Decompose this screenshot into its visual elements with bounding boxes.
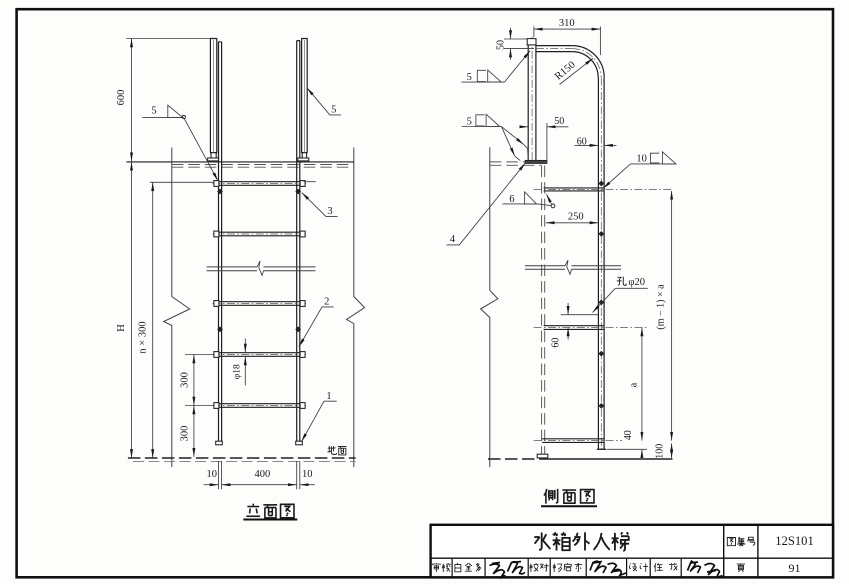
svg-text:2: 2: [324, 297, 329, 308]
svg-text:50: 50: [554, 116, 564, 127]
svg-text:300: 300: [180, 372, 191, 388]
svg-text:400: 400: [255, 469, 271, 480]
svg-text:50: 50: [496, 40, 507, 50]
svg-text:1: 1: [326, 391, 331, 402]
svg-text:4: 4: [450, 234, 456, 245]
svg-text:60: 60: [550, 338, 561, 348]
svg-text:10: 10: [302, 469, 313, 480]
svg-text:250: 250: [568, 212, 584, 223]
svg-text:100: 100: [654, 444, 665, 459]
svg-text:5: 5: [467, 72, 472, 83]
svg-text:300: 300: [180, 426, 191, 442]
svg-text:φ20: φ20: [628, 277, 645, 288]
svg-text:60: 60: [577, 136, 587, 147]
svg-text:10: 10: [636, 154, 647, 165]
svg-text:3: 3: [327, 206, 332, 217]
svg-text:5: 5: [151, 106, 156, 117]
svg-text:a: a: [629, 382, 640, 387]
svg-text:(m − 1) × a: (m − 1) × a: [656, 284, 667, 330]
svg-text:40: 40: [623, 430, 634, 440]
svg-text:φ18: φ18: [233, 364, 243, 379]
svg-text:5: 5: [467, 116, 472, 127]
svg-text:H: H: [116, 324, 127, 332]
svg-text:n × 300: n × 300: [138, 321, 149, 353]
svg-text:310: 310: [559, 18, 575, 29]
svg-text:5: 5: [331, 105, 336, 116]
svg-text:12S101: 12S101: [775, 534, 814, 548]
svg-text:6: 6: [509, 194, 514, 205]
svg-text:600: 600: [116, 90, 127, 106]
svg-text:10: 10: [207, 469, 218, 480]
svg-text:91: 91: [789, 561, 801, 575]
